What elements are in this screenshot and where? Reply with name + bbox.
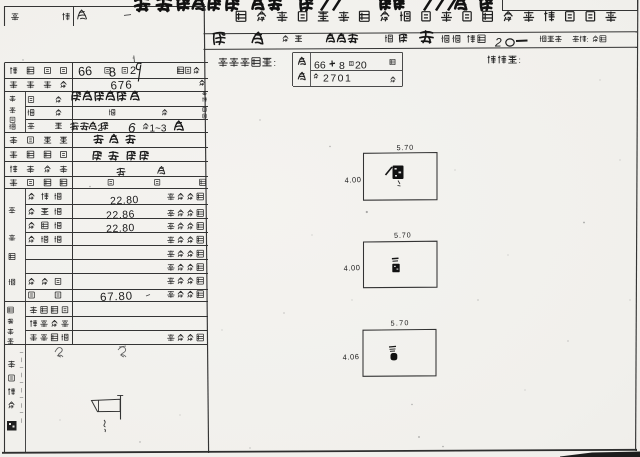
svg-text:22.80: 22.80 <box>106 222 135 235</box>
svg-text:5.70: 5.70 <box>390 318 410 328</box>
svg-text:676: 676 <box>110 79 133 92</box>
svg-text:1~3: 1~3 <box>150 124 167 135</box>
svg-text:5.70: 5.70 <box>394 230 412 240</box>
svg-text:22.86: 22.86 <box>106 208 135 221</box>
svg-text:2: 2 <box>494 36 502 50</box>
svg-text::: : <box>587 35 589 44</box>
svg-text:67.80: 67.80 <box>100 290 133 304</box>
svg-text::: : <box>274 58 277 68</box>
svg-text:66: 66 <box>78 64 93 79</box>
svg-text:2701: 2701 <box>323 73 352 85</box>
svg-text:8: 8 <box>108 64 117 80</box>
svg-text:20: 20 <box>355 60 367 72</box>
svg-text:4.00: 4.00 <box>344 175 361 185</box>
svg-text:5.70: 5.70 <box>396 143 414 153</box>
svg-text:6: 6 <box>128 121 136 136</box>
svg-text:4.06: 4.06 <box>342 352 359 362</box>
svg-text::: : <box>519 55 521 65</box>
svg-text:4.00: 4.00 <box>343 263 360 273</box>
svg-text:66: 66 <box>314 60 326 72</box>
svg-text:8: 8 <box>339 60 345 72</box>
svg-text:2: 2 <box>130 65 136 77</box>
svg-text:22.80: 22.80 <box>110 194 139 207</box>
